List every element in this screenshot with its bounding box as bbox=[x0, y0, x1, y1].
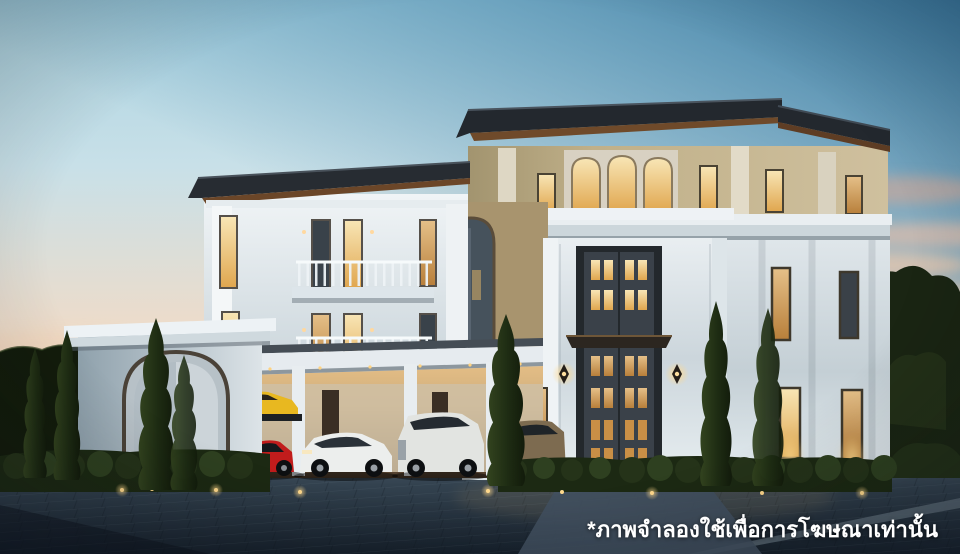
render-image: *ภาพจำลองใช้เพื่อการโฆษณาเท่านั้น bbox=[0, 0, 960, 554]
mansion-scene: *ภาพจำลองใช้เพื่อการโฆษณาเท่านั้น bbox=[0, 0, 960, 554]
vignette bbox=[0, 0, 960, 554]
disclaimer-caption: *ภาพจำลองใช้เพื่อการโฆษณาเท่านั้น bbox=[587, 513, 938, 542]
